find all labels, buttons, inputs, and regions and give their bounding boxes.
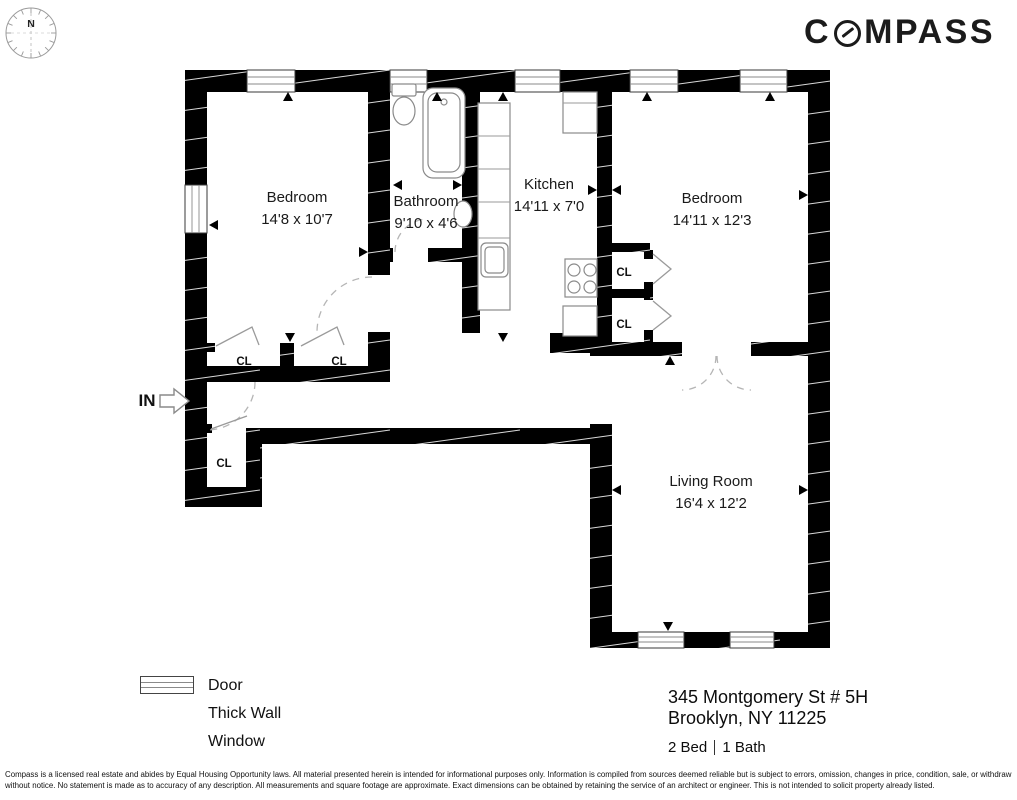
room-dims-bedroom-1: 14'8 x 10'7: [261, 211, 333, 228]
compass-logo: C MPASS: [804, 13, 995, 52]
window: [638, 632, 684, 648]
floorplan-drawing: N: [0, 0, 1017, 760]
closet-label: CL: [236, 356, 251, 368]
kitchen-counter: [478, 103, 510, 310]
legal-disclaimer: Compass is a licensed real estate and ab…: [5, 769, 1013, 791]
kitchen-sink-basin: [485, 247, 504, 273]
refrigerator: [563, 92, 597, 133]
closet-label: CL: [216, 458, 231, 470]
room-label-bedroom-2: Bedroom: [682, 190, 743, 207]
legend-label-thick-wall: Thick Wall: [208, 705, 281, 723]
room-dims-kitchen: 14'11 x 7'0: [514, 198, 585, 215]
baths-count: 1 Bath: [722, 737, 765, 758]
room-dims-living-room: 16'4 x 12'2: [675, 495, 747, 512]
closet-label: CL: [331, 356, 346, 368]
room-dims-bedroom-2: 14'11 x 12'3: [673, 212, 752, 229]
closet-label: CL: [616, 267, 631, 279]
logo-o-icon: [834, 20, 861, 47]
closet-label: CL: [616, 319, 631, 331]
legend-row-window: Window: [140, 732, 281, 752]
closet-bifold-door: [216, 327, 259, 346]
bathtub-drain: [441, 99, 447, 105]
room-label-bedroom-1: Bedroom: [267, 189, 328, 206]
toilet-bowl: [393, 97, 415, 125]
toilet: [392, 84, 416, 96]
entry-marker: IN: [139, 389, 190, 413]
room-label-bathroom: Bathroom: [393, 193, 458, 210]
stove-burner: [584, 264, 596, 276]
room-label-kitchen: Kitchen: [524, 176, 574, 193]
room-dims-bathroom: 9'10 x 4'6: [394, 215, 457, 232]
bedroom1-door-arc: [317, 277, 372, 332]
window: [247, 70, 295, 92]
entry-arrow-icon: [160, 389, 189, 413]
closet-bifold-door: [301, 327, 344, 346]
window: [515, 70, 560, 92]
legend-label-window: Window: [208, 733, 265, 751]
logo-text-suffix: MPASS: [864, 13, 995, 52]
beds-count: 2 Bed: [668, 737, 707, 758]
closet-bifold-door: [653, 301, 671, 330]
stove-burner: [568, 264, 580, 276]
livingroom-double-door-right-arc: [717, 356, 751, 390]
window: [740, 70, 787, 92]
window: [185, 185, 207, 233]
kitchen-counter-2: [563, 306, 597, 336]
bed-bath-divider: [714, 740, 715, 755]
stove-burner: [568, 281, 580, 293]
legend-row-thick-wall: Thick Wall: [140, 704, 281, 724]
room-label-living-room: Living Room: [669, 473, 752, 490]
legend: Door Thick Wall Window: [140, 676, 281, 752]
legend-label-door: Door: [208, 677, 243, 695]
livingroom-double-door-left-arc: [682, 356, 716, 390]
property-info: 345 Montgomery St # 5H Brooklyn, NY 1122…: [668, 687, 868, 758]
entry-door-arc: [207, 382, 255, 430]
compass-rose: N: [6, 8, 56, 58]
address-line-2: Brooklyn, NY 11225: [668, 708, 868, 729]
entry-closet-door: [211, 416, 247, 429]
floorplan-page: N: [0, 0, 1017, 800]
entry-label: IN: [139, 391, 156, 410]
stove-burner: [584, 281, 596, 293]
logo-text-prefix: C: [804, 13, 831, 52]
address-line-1: 345 Montgomery St # 5H: [668, 687, 868, 708]
window: [630, 70, 678, 92]
closet-bifold-door: [653, 254, 671, 284]
bed-bath-summary: 2 Bed 1 Bath: [668, 737, 868, 758]
window: [730, 632, 774, 648]
compass-north-label: N: [27, 18, 35, 30]
